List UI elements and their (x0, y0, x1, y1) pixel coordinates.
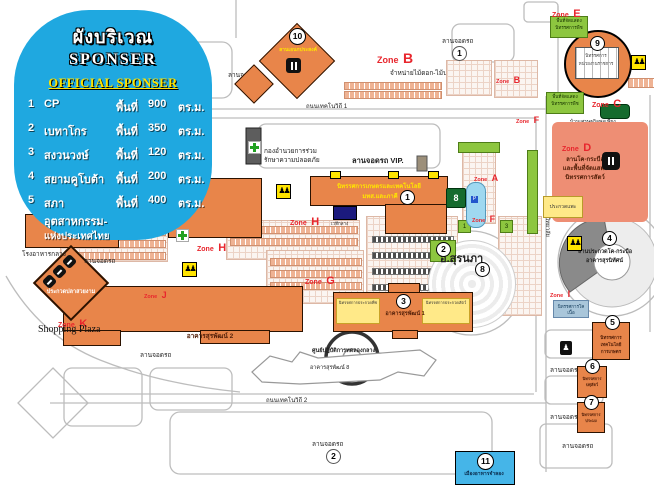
stall-grid (446, 60, 492, 96)
roadside-green-strip (527, 150, 538, 234)
building-3-nub (388, 283, 420, 293)
zone-label-d: Zone D (562, 138, 591, 156)
zone-label-c: Zone C (592, 94, 621, 112)
fish-contest-label: ประกวดปลาสวยงาม (36, 288, 106, 296)
suranapa-number: 8 (475, 262, 490, 277)
building-3-label: อาคารสุรพัฒน์ 1 (365, 310, 445, 318)
parking-sign-icon: P (471, 196, 478, 203)
building-9-label-1: นิทรรศการ (576, 52, 616, 59)
building-11-label: เมืองอาหารจำลอง (456, 470, 512, 478)
zone-label-j: Zone J (144, 285, 167, 303)
building-3-nub (392, 330, 418, 339)
parking-label: ลานจอดรถ (312, 439, 343, 449)
stall-row (344, 82, 442, 90)
canteen-label: โรงอาหารกลาง (22, 249, 66, 259)
parking-label: ลานจอดรถ (84, 256, 115, 266)
stall-row (628, 78, 654, 88)
stall-row (230, 238, 358, 246)
stage-label: เวทีกลาง (331, 220, 348, 227)
sponsor-row: 2เบทาโกร พื้นที่350 ตร.ม. (14, 122, 212, 140)
legend-title-en: SPONSER (14, 51, 212, 69)
building-5-number: 5 (605, 315, 620, 330)
sponsor-row: 4สยามคูโบต้า พื้นที่200 ตร.ม. (14, 170, 212, 188)
zone-d-text: นิทรรศการสัตว์ (554, 172, 616, 182)
food-court-icon (286, 58, 301, 73)
road-label: ถนนเทคโนวิถี 2 (266, 395, 307, 405)
zone-label-g: Zone G (305, 271, 335, 289)
parking-label: ลานจอดรถ (442, 36, 473, 46)
zone-label-b2: Zone B (496, 70, 520, 88)
building-9-label-2: หน่วยงานราชการ (576, 60, 616, 67)
building-9-number: 9 (590, 36, 605, 51)
crossing-icon: ♟♟ (276, 184, 291, 199)
zone-e-exhibit-box: พื้นที่จัดแสดง นิทรรศการพืช (546, 92, 584, 114)
zone-label-f: Zone F (516, 110, 539, 128)
stall-row (344, 91, 442, 99)
zone-a-green-bar (458, 142, 500, 153)
zone-label-f2: Zone F (472, 209, 495, 227)
building-1-label-1: นิทรรศการเกษตรและเทคโนโลยี (312, 181, 446, 191)
first-aid-icon (248, 141, 261, 154)
building-11-number: 11 (477, 453, 494, 470)
goat-contest-box: ประกวดแพะ (543, 196, 583, 218)
pedestrian-icon: ♟ (560, 341, 572, 355)
building-6-label: ปศุสัตว์ (578, 381, 606, 388)
zone-label-a: Zone A (474, 168, 498, 186)
building-10-number: 10 (289, 28, 306, 45)
road-label: ถนนเทคโนวิถี 1 (306, 101, 347, 111)
site-map: อ.สุรนภา 8 ผังบริเวณ SPONSER OFFICIAL SP… (0, 0, 654, 496)
surapat8-label: อาคารสุรพัฒน์ 8 (310, 364, 349, 372)
gate-marker (388, 171, 399, 179)
building-7-label: ประมง (578, 417, 604, 424)
parking-label: ลานจอดรถ (562, 441, 593, 451)
gate-marker (428, 171, 439, 179)
building-10-label: ลานเอนกประสงค์ (262, 46, 334, 54)
surapat2-label: อาคารสุรพัฒน์ 2 (150, 331, 270, 341)
parking-label: ลานจอดรถ (140, 350, 171, 360)
gate-marker (330, 171, 341, 179)
legend-title-th: ผังบริเวณ (14, 22, 212, 51)
shopping-plaza-label: Shopping Plaza (38, 324, 101, 335)
arena-label-2: อาคารสุรนิทัศน์ (586, 257, 623, 265)
stall-row (270, 258, 362, 266)
legend-subtitle: OFFICIAL SPONSER (48, 76, 177, 91)
building-3-number: 3 (396, 294, 411, 309)
central-lab-label: ศูนย์ปฏิบัติการทดลองกลาง (312, 347, 375, 355)
beef-expo-box: นิทรรศการโคเนื้อ (553, 300, 589, 318)
building-7-number: 7 (584, 395, 599, 410)
building-1-number: 1 (400, 190, 415, 205)
parking-2-number: 2 (326, 449, 341, 464)
security-label-2: รักษาความปลอดภัย (264, 155, 320, 165)
building-6-number: 6 (585, 359, 600, 374)
crossing-icon: ♟♟ (567, 236, 582, 251)
sponsor-row: 1CP พื้นที่900 ตร.ม. (14, 98, 212, 116)
parking-1-number: 1 (452, 46, 467, 61)
zone-label-b: Zone B (377, 50, 413, 68)
building-1-label-2: มทส.และภาคี (330, 191, 430, 201)
stage-box (333, 206, 357, 220)
arena-number: 4 (602, 231, 617, 246)
crossing-icon: ♟♟ (182, 262, 197, 277)
sponsor-row: 3สงวนวงษ์ พื้นที่120 ตร.ม. (14, 146, 212, 164)
green-booth-3: 3 (500, 220, 513, 233)
sponsor-legend: ผังบริเวณ SPONSER OFFICIAL SPONSER 1CP พ… (14, 10, 212, 240)
green-booth-2-number: 2 (436, 242, 451, 257)
zone-label-i: Zone I (550, 284, 570, 302)
building-5-label: เทคโนโลยีการเกษตร (593, 341, 629, 355)
sponsor-row: 5 สภาอุตสาหกรรม-แห่งประเทศไทย พื้นที่400… (14, 194, 212, 244)
crossing-icon: ♟♟ (631, 55, 646, 70)
building-5-label: นิทรรศการ (593, 334, 629, 341)
building-8-box: 8 (446, 188, 466, 208)
zone-label-e: Zone E (552, 4, 581, 22)
parking-vip-label: ลานจอดรถ VIP. (352, 155, 404, 167)
restaurant-icon (602, 152, 620, 170)
building-1-wing (385, 204, 447, 234)
zone-label-h2: Zone H (290, 212, 319, 230)
arena-label-1: ลานประกวดโค-กระบือ (578, 248, 632, 256)
